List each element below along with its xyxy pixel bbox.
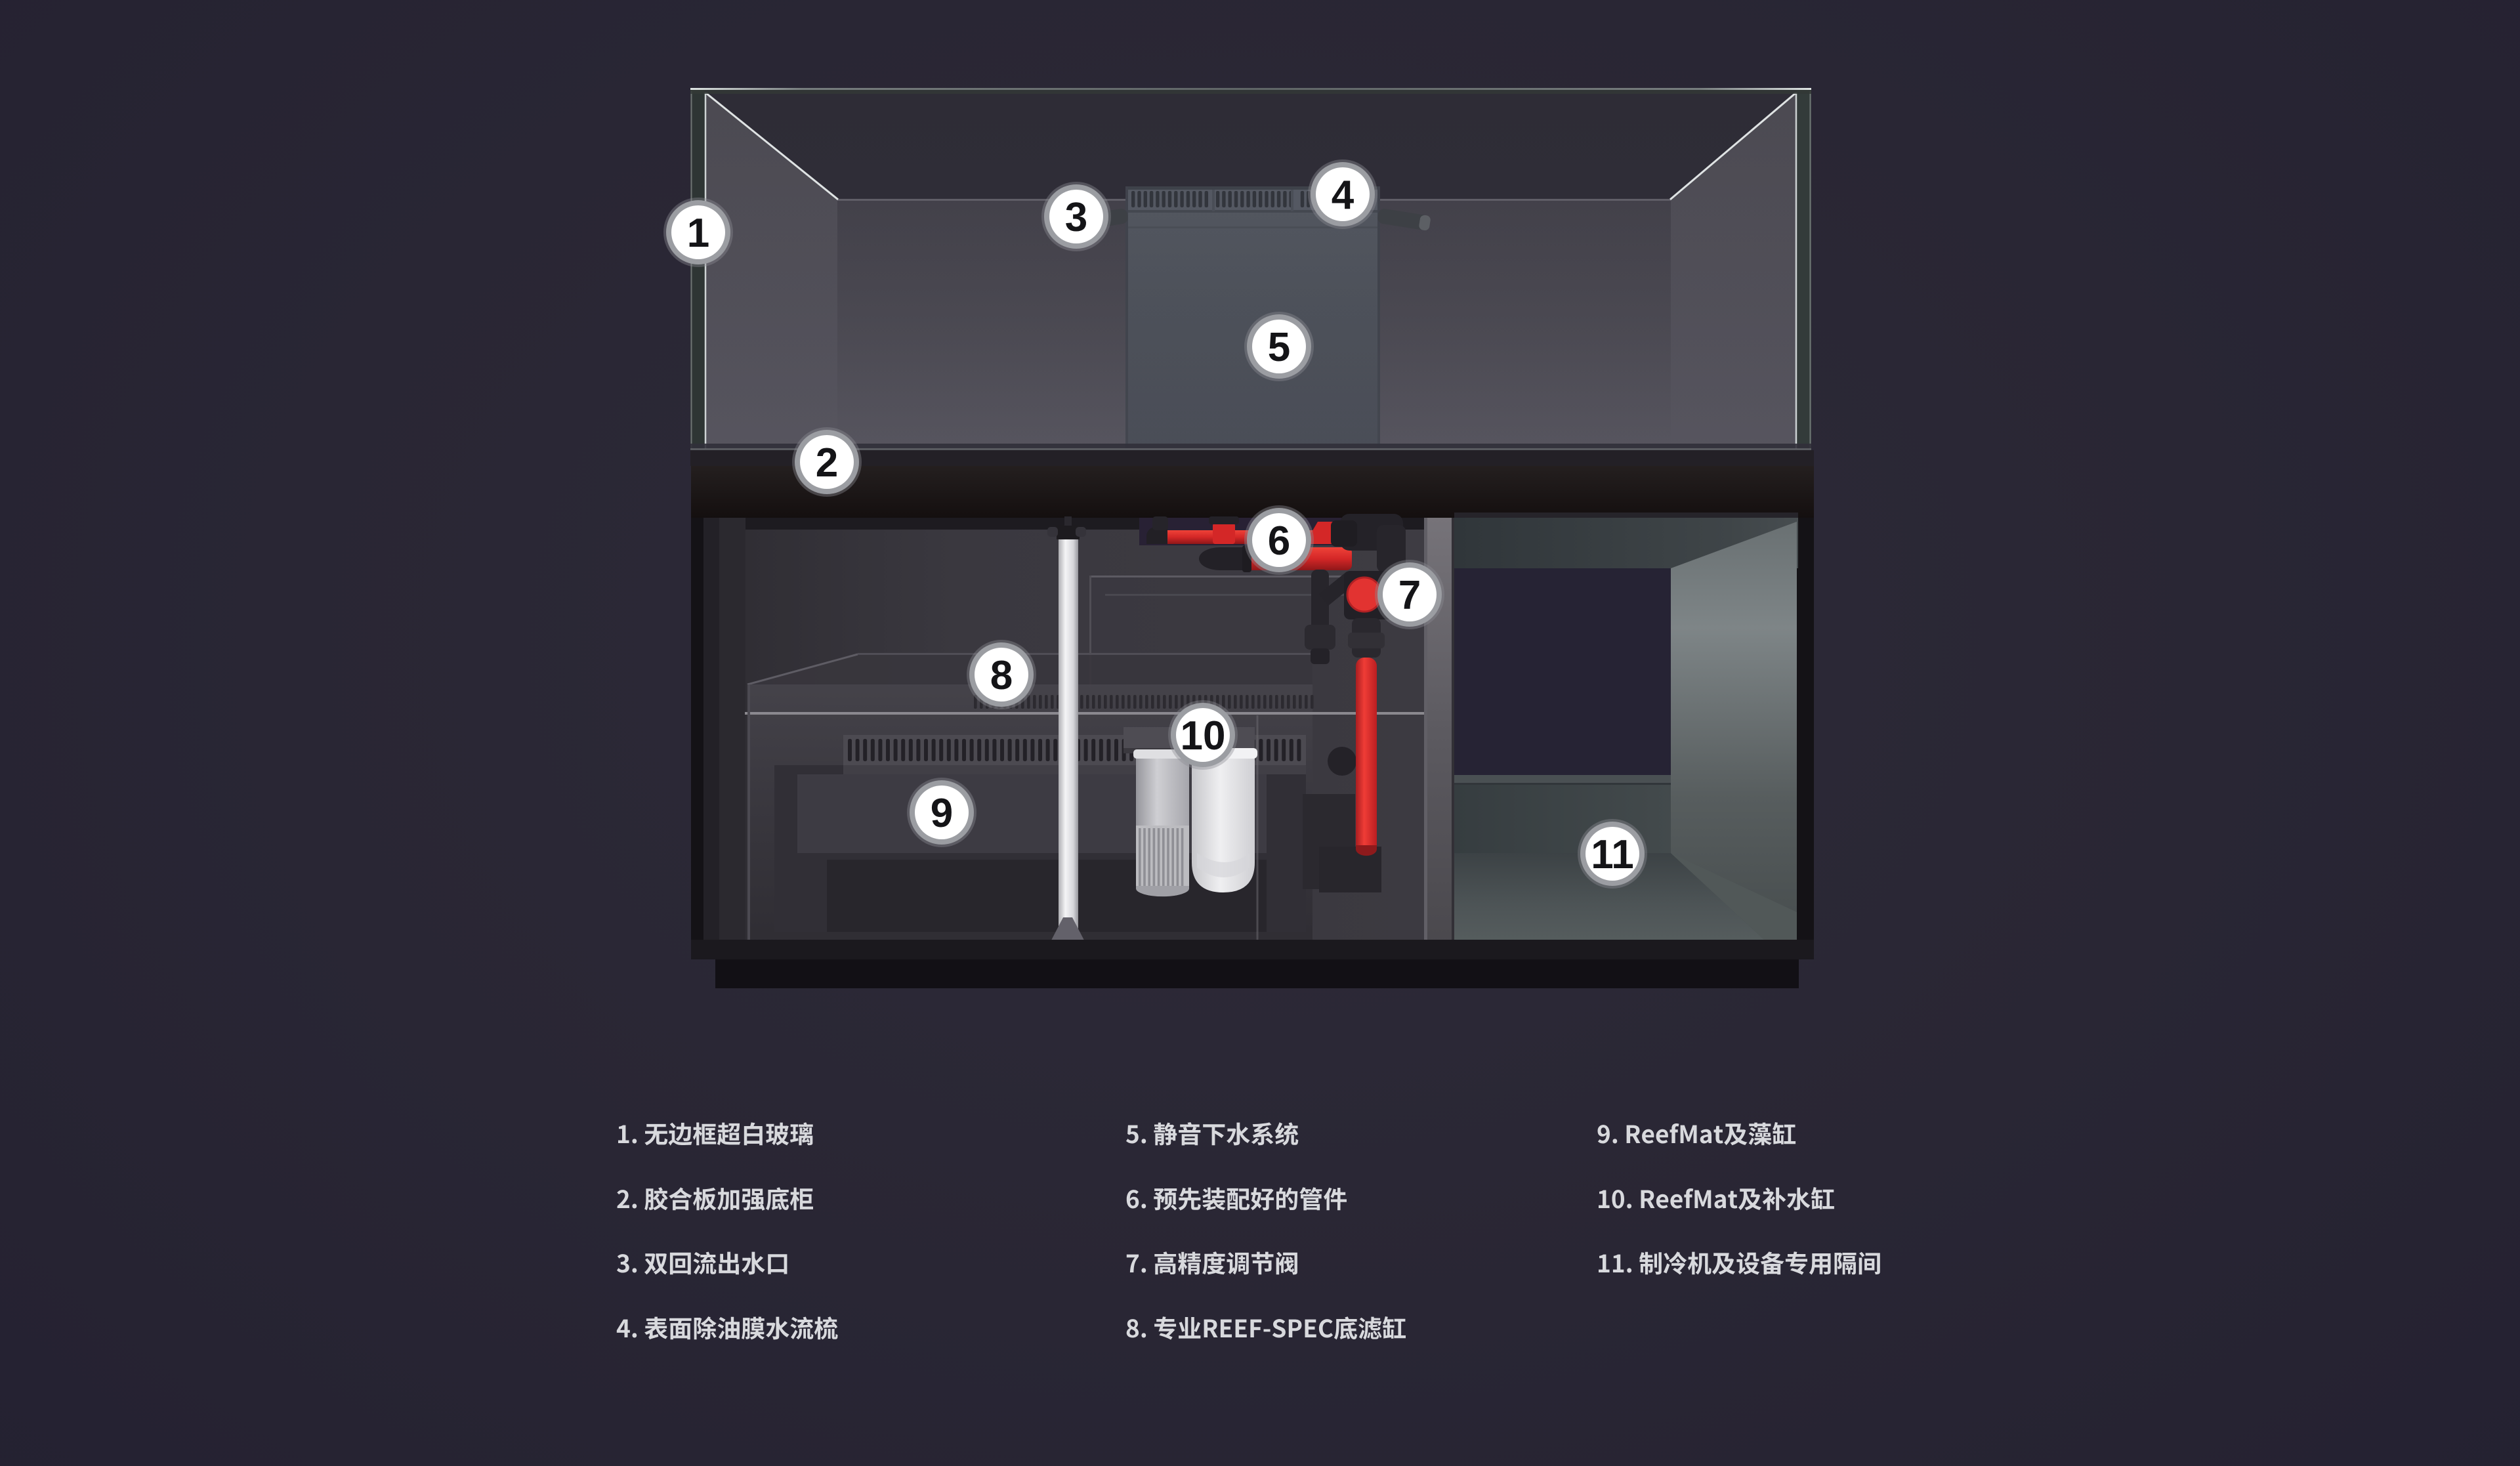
svg-text:3: 3 xyxy=(1065,195,1087,240)
svg-text:2: 2 xyxy=(816,440,838,486)
svg-text:4: 4 xyxy=(1332,173,1354,218)
svg-text:5: 5 xyxy=(1268,325,1290,370)
svg-text:7: 7 xyxy=(1398,573,1421,618)
svg-text:8: 8 xyxy=(990,653,1013,698)
svg-text:10: 10 xyxy=(1181,713,1226,759)
svg-text:1: 1 xyxy=(687,211,709,256)
svg-text:9: 9 xyxy=(931,791,953,836)
svg-text:11: 11 xyxy=(1591,832,1634,877)
svg-text:6: 6 xyxy=(1268,518,1290,564)
